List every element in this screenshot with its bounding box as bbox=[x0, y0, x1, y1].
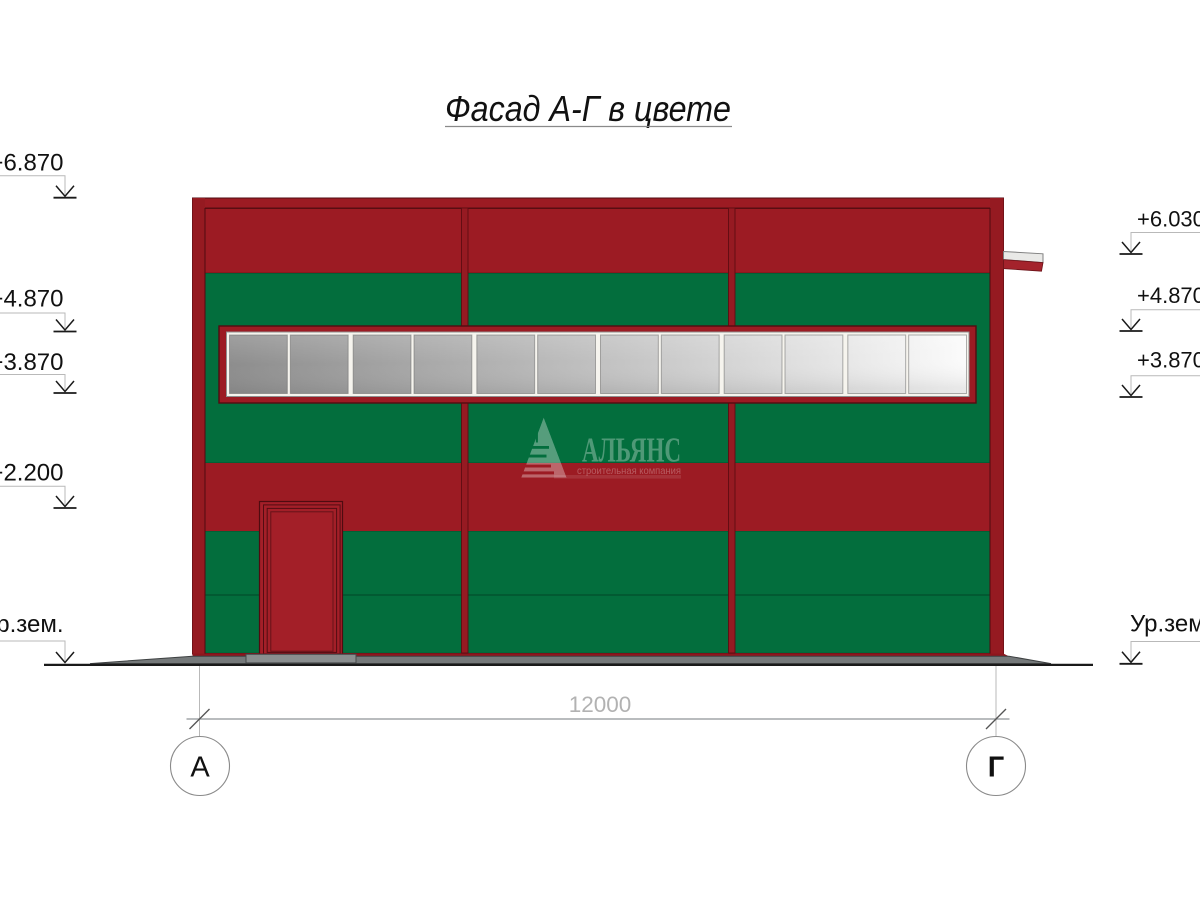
svg-text:строительная компания: строительная компания bbox=[577, 466, 681, 477]
svg-text:АЛЬЯНС: АЛЬЯНС bbox=[582, 432, 681, 470]
svg-text:+3.870: +3.870 bbox=[1137, 348, 1200, 373]
svg-text:12000: 12000 bbox=[569, 692, 632, 717]
svg-text:+3.870: +3.870 bbox=[0, 349, 64, 376]
svg-text:А: А bbox=[190, 752, 210, 784]
svg-text:+4.870: +4.870 bbox=[1137, 283, 1200, 308]
svg-text:+4.870: +4.870 bbox=[0, 286, 64, 313]
svg-text:+6.870: +6.870 bbox=[0, 150, 64, 177]
svg-text:+6.030: +6.030 bbox=[1137, 207, 1200, 232]
svg-text:Ур.зем.: Ур.зем. bbox=[1130, 611, 1200, 638]
svg-text:Фасад А-Г в цвете: Фасад А-Г в цвете bbox=[445, 88, 731, 129]
svg-text:Ур.зем.: Ур.зем. bbox=[0, 611, 64, 638]
svg-text:+2.200: +2.200 bbox=[0, 460, 64, 487]
svg-text:Г: Г bbox=[988, 752, 1004, 784]
